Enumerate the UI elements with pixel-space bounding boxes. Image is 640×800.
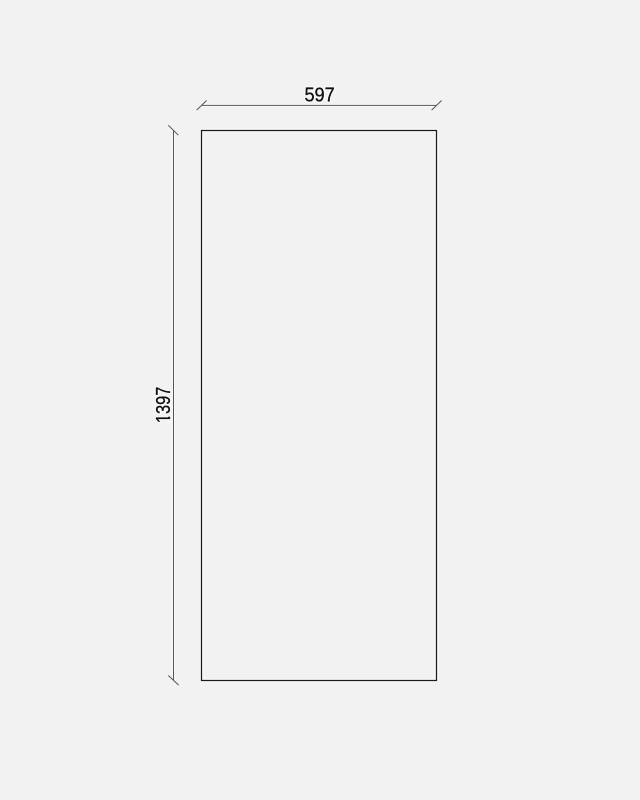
svg-text:1397: 1397	[153, 387, 175, 423]
svg-text:597: 597	[304, 85, 334, 107]
